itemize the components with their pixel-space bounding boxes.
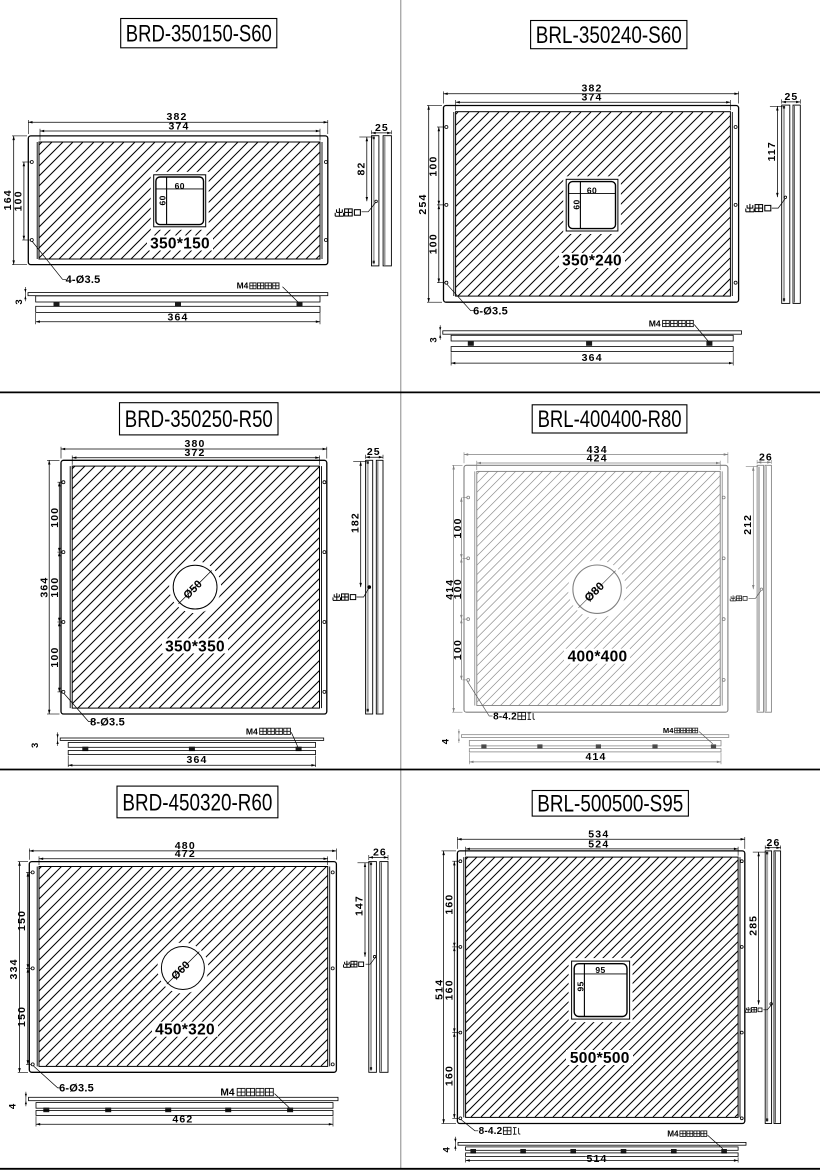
svg-text:100: 100 <box>428 155 440 176</box>
svg-text:100: 100 <box>49 577 61 598</box>
svg-text:BRD-350250-R50: BRD-350250-R50 <box>125 406 273 433</box>
svg-text:472: 472 <box>175 848 196 860</box>
svg-text:60: 60 <box>158 195 168 205</box>
svg-text:60: 60 <box>175 181 185 191</box>
svg-text:150: 150 <box>16 1006 28 1027</box>
svg-text:4: 4 <box>7 1103 18 1109</box>
svg-text:26: 26 <box>759 451 773 463</box>
svg-text:M4: M4 <box>663 726 674 735</box>
svg-text:364: 364 <box>582 352 603 364</box>
svg-text:160: 160 <box>444 1065 456 1086</box>
svg-text:4: 4 <box>441 1146 452 1152</box>
svg-text:334: 334 <box>8 958 20 979</box>
svg-text:8-4.2: 8-4.2 <box>479 1126 503 1137</box>
svg-text:350*150: 350*150 <box>150 235 210 252</box>
svg-text:4-Ø3.5: 4-Ø3.5 <box>66 274 101 286</box>
svg-text:95: 95 <box>575 981 585 991</box>
svg-text:95: 95 <box>595 965 605 975</box>
svg-text:462: 462 <box>172 1114 193 1126</box>
svg-text:3: 3 <box>429 337 440 342</box>
svg-text:6-Ø3.5: 6-Ø3.5 <box>473 305 508 317</box>
svg-text:100: 100 <box>452 639 464 660</box>
svg-text:285: 285 <box>747 915 759 936</box>
svg-text:100: 100 <box>49 507 61 528</box>
svg-text:514: 514 <box>586 1153 607 1165</box>
svg-text:25: 25 <box>367 446 381 458</box>
svg-text:500*500: 500*500 <box>570 1050 630 1067</box>
svg-text:160: 160 <box>444 979 456 1000</box>
svg-text:424: 424 <box>587 453 608 465</box>
svg-text:M4: M4 <box>649 318 661 328</box>
svg-text:350*240: 350*240 <box>562 253 622 270</box>
svg-text:8-4.2: 8-4.2 <box>493 711 517 722</box>
svg-text:BRL-350240-S60: BRL-350240-S60 <box>536 22 682 49</box>
svg-text:BRD-450320-R60: BRD-450320-R60 <box>122 789 272 816</box>
svg-text:212: 212 <box>742 514 754 535</box>
svg-text:M4: M4 <box>237 281 249 291</box>
svg-text:414: 414 <box>585 751 606 763</box>
svg-text:147: 147 <box>354 895 366 916</box>
svg-text:254: 254 <box>417 193 429 214</box>
svg-text:160: 160 <box>444 894 456 915</box>
svg-text:372: 372 <box>184 447 205 459</box>
svg-text:350*350: 350*350 <box>165 638 225 655</box>
svg-text:524: 524 <box>588 839 609 851</box>
svg-text:BRL-500500-S95: BRL-500500-S95 <box>537 791 683 818</box>
svg-text:364: 364 <box>186 754 207 766</box>
svg-text:M4: M4 <box>667 1130 679 1139</box>
svg-text:374: 374 <box>168 121 189 133</box>
svg-text:100: 100 <box>49 646 61 667</box>
svg-text:M4: M4 <box>220 1088 234 1099</box>
svg-text:BRL-400400-R80: BRL-400400-R80 <box>538 406 682 433</box>
svg-text:182: 182 <box>350 512 362 533</box>
svg-text:6-Ø3.5: 6-Ø3.5 <box>59 1083 94 1095</box>
svg-text:100: 100 <box>452 517 464 538</box>
svg-text:374: 374 <box>581 92 602 104</box>
svg-text:364: 364 <box>167 312 188 324</box>
svg-text:3: 3 <box>14 299 25 304</box>
svg-text:450*320: 450*320 <box>155 1022 215 1039</box>
svg-text:3: 3 <box>30 743 41 748</box>
svg-text:100: 100 <box>452 578 464 599</box>
svg-text:400*400: 400*400 <box>568 649 628 666</box>
svg-text:26: 26 <box>373 847 387 859</box>
svg-text:117: 117 <box>766 141 778 161</box>
svg-text:25: 25 <box>784 91 798 103</box>
svg-text:BRD-350150-S60: BRD-350150-S60 <box>126 20 272 47</box>
svg-text:150: 150 <box>16 910 28 931</box>
svg-text:60: 60 <box>587 186 597 196</box>
svg-text:M4: M4 <box>246 726 258 736</box>
svg-text:8-Ø3.5: 8-Ø3.5 <box>90 716 125 728</box>
svg-text:82: 82 <box>356 162 368 176</box>
svg-text:100: 100 <box>428 233 440 254</box>
svg-text:100: 100 <box>12 190 24 211</box>
svg-text:4: 4 <box>441 738 452 744</box>
svg-text:26: 26 <box>767 837 781 849</box>
svg-text:25: 25 <box>375 122 389 134</box>
svg-text:60: 60 <box>572 199 582 209</box>
